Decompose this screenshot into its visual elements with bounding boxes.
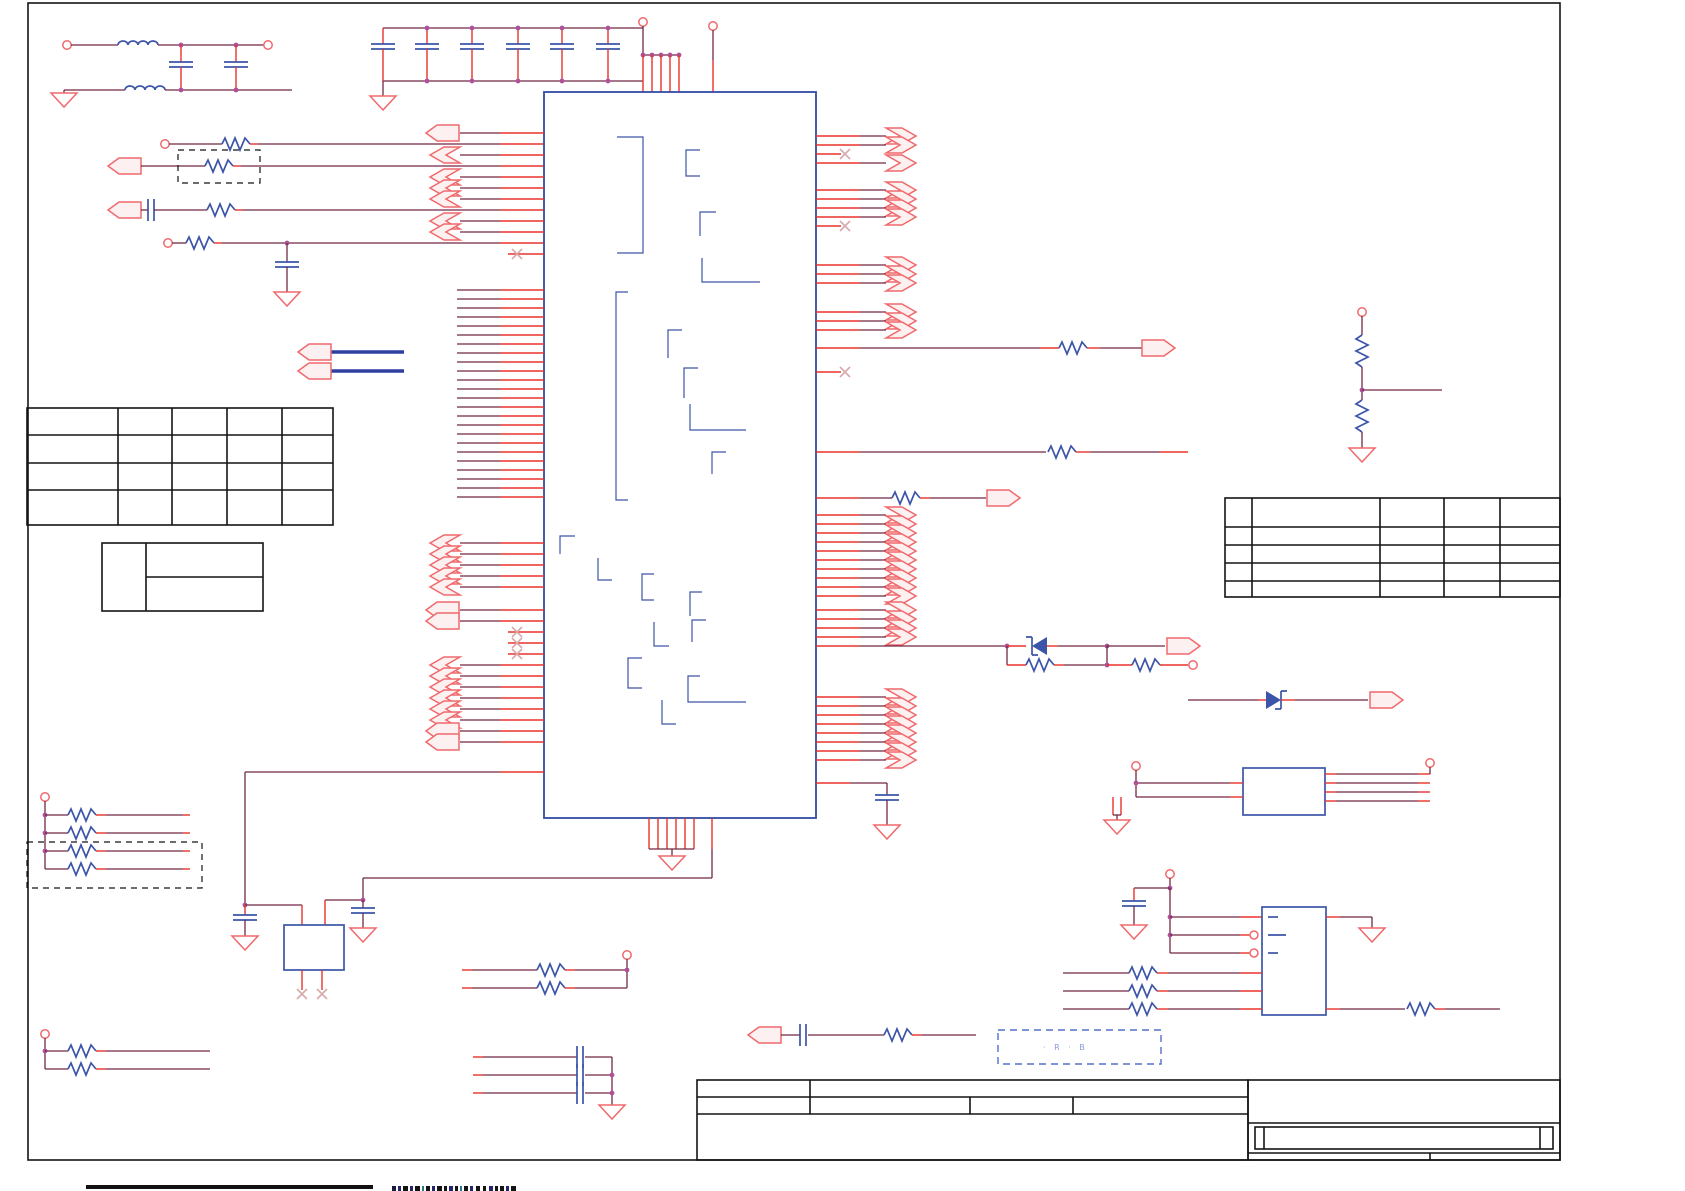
resistor-group-b (41, 1030, 210, 1075)
driver-ic-box (1104, 759, 1434, 834)
right-table (1225, 498, 1560, 597)
ic-bypass-cap-right (816, 783, 900, 839)
coupling-cap-trio (473, 1046, 625, 1119)
right-ports-a-chev (816, 128, 916, 171)
schematic-sheet: · R · B (0, 0, 1685, 1191)
right-ports-c-chev (816, 257, 916, 291)
left-ports-c-nc (508, 627, 544, 659)
bias-resistor-row (164, 237, 544, 306)
series-diode-row (1188, 691, 1403, 709)
divider-resistor-chain (1349, 308, 1442, 462)
right-ports-d-nc (816, 367, 850, 377)
left-ports-a-nc (508, 249, 544, 259)
emi-filter-circuit (51, 41, 292, 107)
right-long-row-3 (816, 490, 1020, 506)
cropped-text-marks (392, 1186, 516, 1191)
note-dashed-box: · R · B (998, 1030, 1161, 1064)
schematic-canvas: · R · B (0, 0, 1685, 1191)
left-ports-d-arrow (426, 723, 544, 750)
comparator-circuit (1063, 870, 1500, 1015)
note-text: · R · B (1043, 1043, 1088, 1052)
right-ports-b-nc (816, 221, 850, 231)
left-ports-c-arrow (426, 602, 544, 629)
ac-input-row (108, 199, 544, 221)
ac-coupled-row (748, 1024, 976, 1046)
right-ports-a-nc (816, 149, 850, 159)
right-ports-e-chev (816, 602, 916, 645)
terminator-resistor-pair (462, 951, 631, 994)
right-long-row-2 (816, 446, 1188, 458)
clamp-diode-circuit (816, 637, 1200, 671)
resistor-group-a (27, 793, 202, 888)
pullup-resistor-row (161, 138, 544, 150)
title-block (697, 1080, 1560, 1160)
left-ports-d-chev (430, 657, 544, 728)
left-ports-a-chev (430, 147, 544, 240)
right-ports-f-chev (816, 689, 916, 768)
left-bus-stubs (457, 290, 544, 497)
bottom-crop-strip (86, 1185, 516, 1191)
right-ports-b-chev (816, 182, 916, 225)
left-ports-a-arrow (426, 125, 544, 141)
main-ic (544, 92, 816, 818)
right-bus-chev (816, 507, 916, 604)
right-long-row-1 (816, 340, 1175, 356)
left-small-table (102, 543, 263, 611)
left-table (27, 408, 333, 525)
power-entry-bundle (641, 22, 718, 92)
right-ports-d-chev (816, 304, 916, 338)
left-ports-b-chev (430, 535, 544, 595)
data-bus-lines (298, 344, 404, 379)
